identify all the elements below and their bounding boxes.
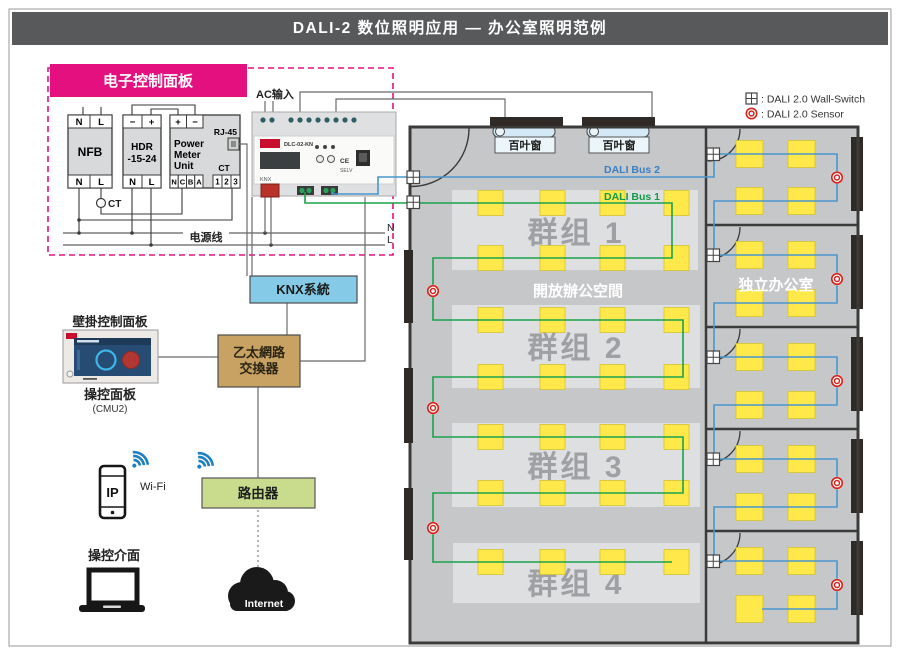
blind-label: 百叶窗 (603, 138, 636, 152)
power-line-label: 电源线 (190, 230, 223, 244)
terminal-label: − (130, 117, 136, 128)
router-label: 路由器 (238, 485, 279, 501)
screen-button-red (123, 352, 140, 369)
control-panel-title: 电子控制面板 (103, 72, 194, 90)
mw-logo (260, 139, 280, 148)
terminal-label: N (76, 177, 83, 188)
sensor-icon (427, 522, 440, 535)
internet-label: Internet (245, 598, 284, 610)
rj45-port-inner (231, 141, 236, 147)
ethernet-switch-label-1: 乙太網路 (233, 345, 286, 360)
door-bar (404, 250, 413, 323)
sensor-icon (427, 402, 440, 415)
diagram-canvas: DALI-2 数位照明应用 — 办公室照明范例 电子控制面板 CT 电源线 N … (0, 0, 900, 655)
blind-unit: 百叶窗 (493, 126, 555, 153)
pm-label-3: Unit (174, 161, 194, 172)
terminal-label: L (98, 177, 104, 188)
terminal-label: B (188, 178, 194, 187)
group-label: 群组 1 (527, 216, 624, 250)
dali-bus1-label: DALI Bus 1 (604, 191, 660, 203)
terminal-label: L (149, 177, 155, 188)
window-bar (490, 117, 563, 126)
panel-knob (67, 371, 73, 377)
ethernet-switch-label-2: 交換器 (239, 361, 279, 376)
legend-label: : DALI 2.0 Sensor (761, 109, 844, 121)
wall-panel-title: 壁掛控制面板 (72, 314, 148, 329)
neutral-label: N (387, 222, 395, 234)
pm-label-2: Meter (174, 150, 201, 161)
knx-system-label: KNX系統 (276, 282, 329, 297)
terminal-label: 3 (233, 178, 238, 187)
blind-label: 百叶窗 (509, 138, 542, 152)
terminal-label: C (180, 178, 186, 187)
terminal-label: 1 (215, 178, 220, 187)
dlc-controller: DLC-02-KN KNX CE SELV (252, 112, 396, 197)
sensor-icon (831, 273, 844, 286)
ceiling-light (736, 596, 763, 623)
terminal-label: L (98, 117, 104, 128)
laptop-icon (79, 570, 145, 612)
ct-inline-label: CT (108, 199, 121, 210)
group-label: 群组 3 (527, 450, 624, 484)
dlc-power-terminal (261, 184, 279, 197)
sensor-icon (831, 477, 844, 490)
hdr-label-2: -15-24 (128, 154, 157, 165)
terminal-label: N (76, 117, 83, 128)
terminal-label: − (192, 117, 198, 128)
hdr-device: − + N L HDR -15-24 (123, 115, 161, 188)
dlc-display (260, 152, 300, 169)
legend-label: : DALI 2.0 Wall-Switch (761, 94, 865, 106)
terminal-label: N (129, 177, 136, 188)
door-bar (404, 488, 413, 560)
door-bar (404, 368, 413, 443)
power-meter-device: + − Power Meter Unit RJ-45 CT N C B A 1 … (170, 115, 240, 188)
wall-panel-caption: 操控面板 (84, 387, 137, 402)
wall-panel-sub-caption: (CMU2) (93, 404, 128, 415)
terminal-label: N (171, 178, 176, 187)
dlc-knx-label: KNX (260, 177, 272, 183)
sensor-icon (831, 579, 844, 592)
dali-bus2-label: DALI Bus 2 (604, 164, 660, 176)
ce-mark: CE (340, 158, 350, 165)
rj45-label: RJ-45 (214, 127, 237, 137)
open-office-label: 開放辦公空間 (533, 282, 623, 300)
blind-unit: 百叶窗 (587, 126, 649, 153)
terminal-label: 2 (224, 178, 229, 187)
phone-ip-label: IP (106, 485, 119, 500)
live-label: L (387, 234, 393, 246)
dlc-model-label: DLC-02-KN (284, 142, 313, 148)
page-title: DALI-2 数位照明应用 — 办公室照明范例 (293, 18, 607, 37)
terminal-label: A (196, 178, 202, 187)
private-office-label: 独立办公室 (738, 276, 813, 294)
nfb-label: NFB (78, 145, 103, 159)
laptop-caption: 操控介面 (88, 548, 140, 563)
pm-label-1: Power (174, 139, 204, 150)
nfb-device: N L N L NFB (68, 115, 112, 188)
wall-panel-device (63, 330, 158, 383)
diagram-svg: DALI-2 数位照明应用 — 办公室照明范例 电子控制面板 CT 电源线 N … (0, 0, 900, 655)
hdr-label-1: HDR (131, 142, 153, 153)
terminal-label: + (149, 117, 155, 128)
ac-input-label: AC输入 (256, 87, 294, 101)
sensor-icon (831, 171, 844, 184)
selv-label: SELV (340, 168, 353, 174)
wifi-label: Wi-Fi (140, 481, 166, 493)
ct-transformer-icon (97, 199, 106, 208)
terminal-label: + (175, 117, 181, 128)
pm-ct-label: CT (218, 163, 230, 173)
sensor-icon (427, 285, 440, 298)
group-label: 群组 2 (527, 331, 624, 365)
window-bar (582, 117, 655, 126)
phone-icon: IP (100, 466, 125, 518)
sensor-icon (831, 375, 844, 388)
